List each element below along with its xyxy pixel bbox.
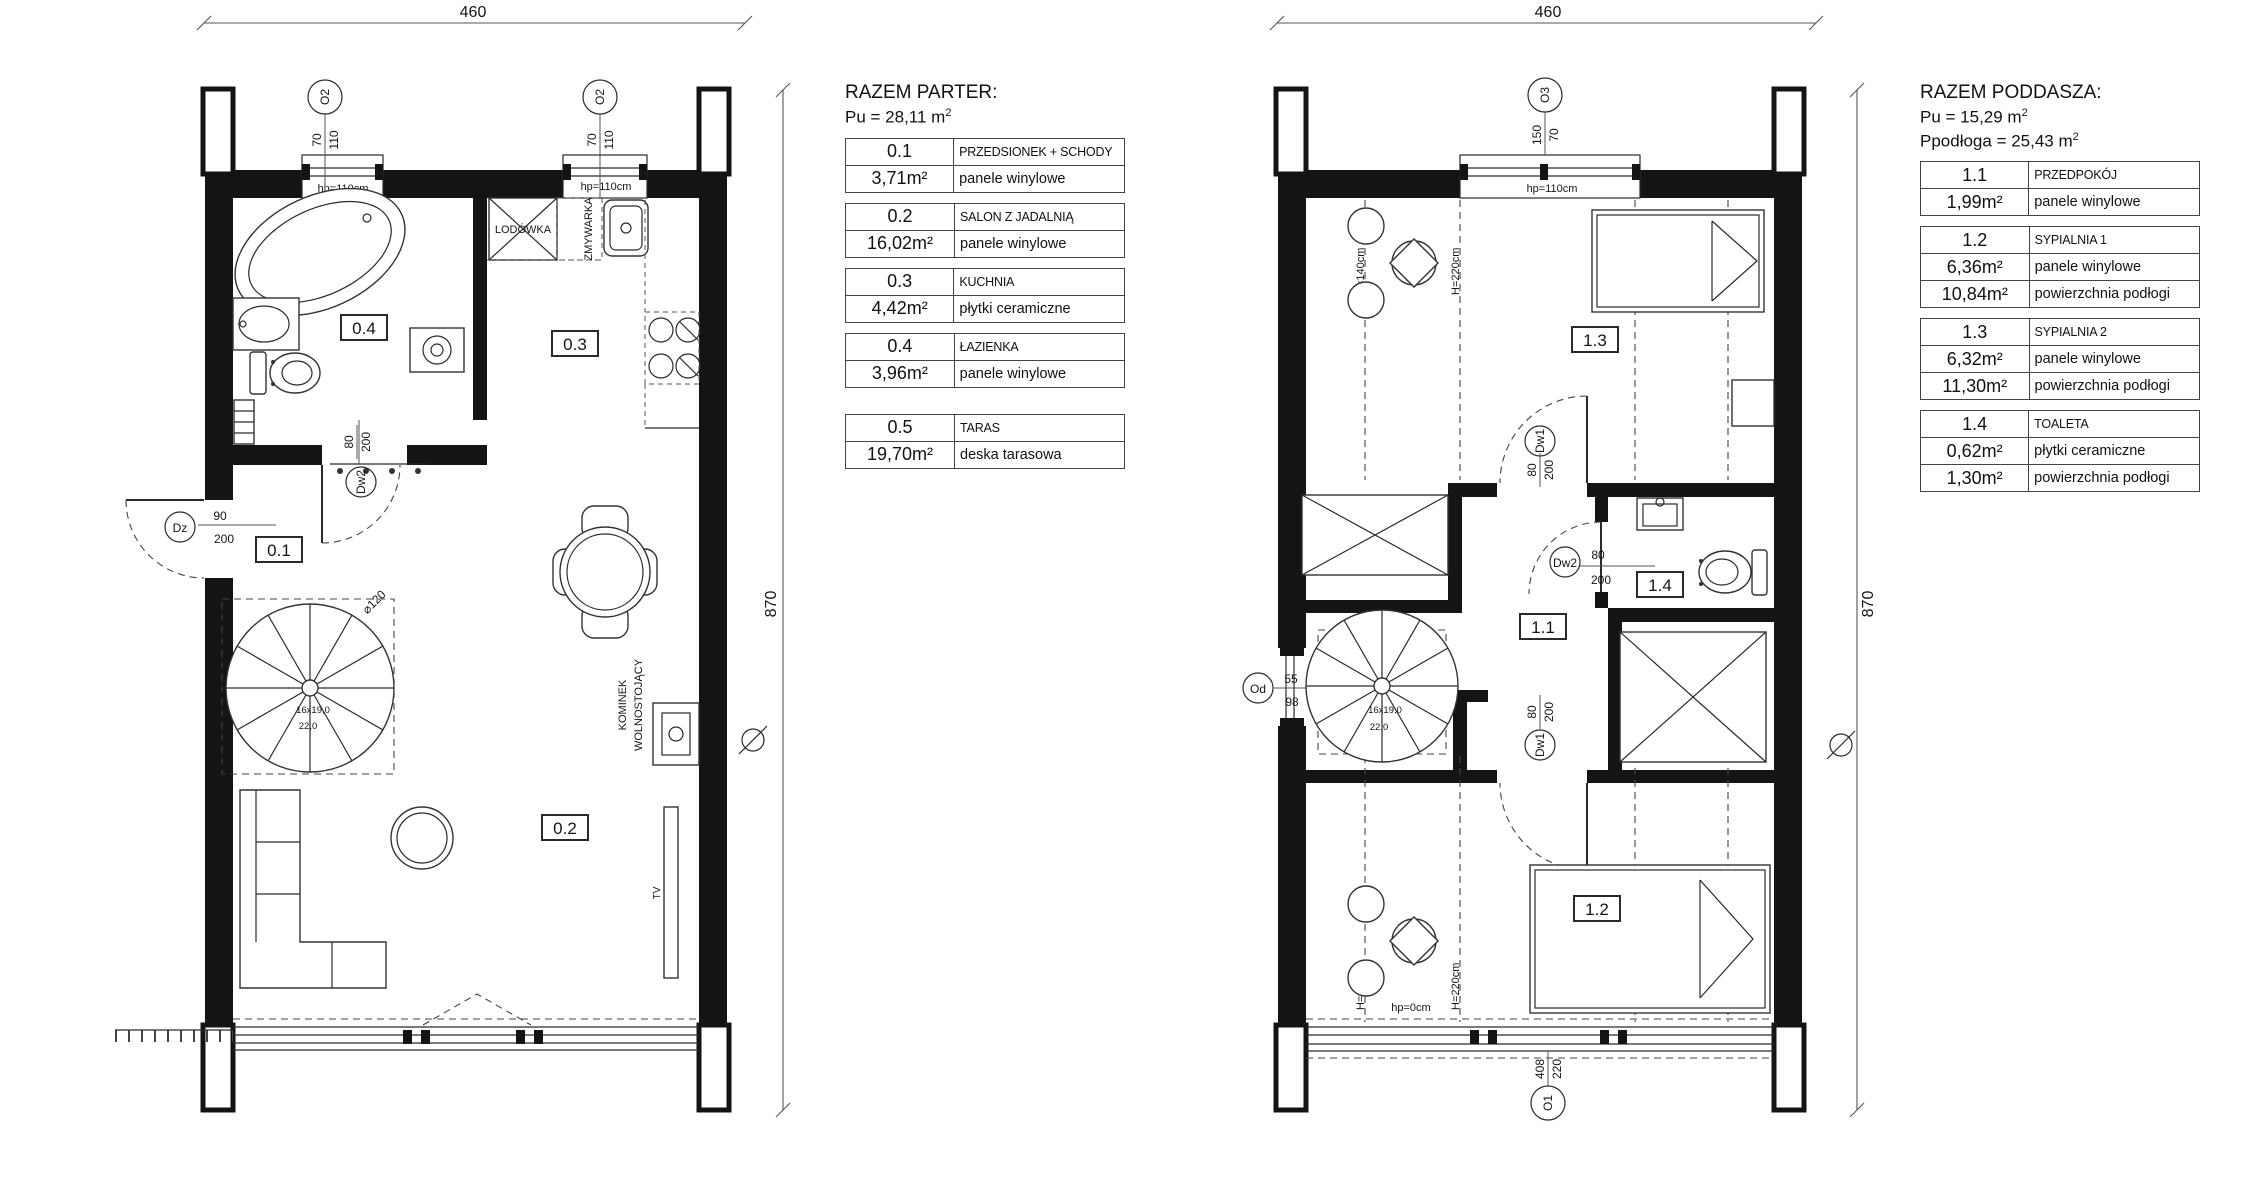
dimension-width-poddasze: 460: [1270, 4, 1823, 30]
bathroom-door-symbol: Dw2: [354, 470, 368, 494]
room-area: 11,30m²: [1921, 373, 2030, 400]
door-symbol: Dw1: [1533, 429, 1547, 453]
entry-door-symbol: Dz: [173, 521, 188, 535]
bathroom-door-width: 80: [342, 435, 356, 449]
fireplace: KOMINEK WOLNOSTOJĄCY: [617, 658, 699, 765]
dishwasher-label: ZMYWARKA: [583, 197, 595, 261]
room-finish: panele winylowe: [2029, 189, 2200, 216]
room-area: 0,62m²: [1921, 438, 2029, 465]
dimension-width-parter: 460: [197, 4, 752, 30]
room-id: 0.5: [846, 414, 955, 441]
tv-cabinet: TV: [652, 807, 678, 978]
washing-machine: [410, 328, 464, 372]
fridge-label: LODÓWKA: [495, 223, 552, 236]
door-height: 200: [1542, 702, 1556, 722]
pillar: [699, 1025, 729, 1110]
stair-steps: 16x19,0: [296, 705, 330, 716]
room-area: 4,42m²: [846, 295, 954, 322]
window-width: 150: [1530, 125, 1544, 145]
legend-room-0-2: 0.2 SALON Z JADALNIĄ 16,02m² panele winy…: [845, 203, 1125, 258]
flue-symbol: [1827, 731, 1855, 759]
legend-parter: RAZEM PARTER: Pu = 28,11 m2 0.1 PRZEDSIO…: [845, 82, 1125, 469]
door-symbol: Dw2: [1553, 556, 1577, 570]
window-width: 70: [585, 133, 599, 147]
svg-text:1.4: 1.4: [1648, 576, 1672, 595]
svg-text:1.2: 1.2: [1585, 900, 1609, 919]
pillar: [1276, 89, 1306, 174]
room-name: TARAS: [955, 414, 1125, 441]
room-area: 1,30m²: [1921, 465, 2029, 492]
room-finish: powierzchnia podłogi: [2029, 465, 2200, 492]
room-name: SYPIALNIA 2: [2029, 319, 2199, 346]
washbasin: [233, 298, 299, 350]
entry-door-height: 200: [214, 532, 234, 546]
door-width: 80: [1525, 705, 1539, 719]
window-callout-o2-left: O2 70 110: [308, 80, 342, 198]
stair-steps: 16x19,0: [1368, 705, 1402, 716]
pillar: [1774, 89, 1804, 174]
pillar: [1276, 1025, 1306, 1110]
chairs-table-bottom: [1348, 886, 1438, 996]
legend-poddasze-floor-area: Ppodłoga = 25,43 m2: [1920, 131, 2200, 152]
door-dw1-upper: Dw1 80 200: [1500, 396, 1587, 487]
legend-room-0-1: 0.1 PRZEDSIONEK + SCHODY 3,71m² panele w…: [845, 138, 1125, 193]
attic-spiral-staircase: 16x19,0 22,0: [1306, 610, 1458, 762]
svg-text:870: 870: [1860, 591, 1877, 618]
room-tag-1-1: 1.1: [1520, 614, 1566, 639]
room-name: ŁAZIENKA: [954, 333, 1124, 360]
window-width: 55: [1284, 672, 1298, 686]
toilet: [250, 352, 320, 394]
fridge: LODÓWKA: [489, 198, 557, 260]
window-o2-right: hp=110cm: [563, 155, 647, 198]
fireplace-label-2: WOLNOSTOJĄCY: [633, 658, 645, 751]
door-width: 80: [1525, 463, 1539, 477]
window-symbol: O2: [318, 89, 332, 105]
window-sill-height: hp=110cm: [581, 181, 632, 193]
room-area: 19,70m²: [846, 441, 955, 468]
room-area: 10,84m²: [1921, 281, 2030, 308]
wardrobe-left: [1302, 495, 1448, 575]
terrace-door-swing: [423, 994, 531, 1025]
room-finish: panele winylowe: [954, 165, 1125, 192]
spiral-staircase: ⌀120 16x19,0 22,0: [222, 587, 394, 774]
dishwasher: ZMYWARKA: [557, 197, 602, 261]
legend-poddasze-title: RAZEM PODDASZA:: [1920, 82, 2200, 104]
room-id: 1.2: [1921, 227, 2030, 254]
poddasze-plan: hp=110cm O3 150 70 hp=0cm: [1243, 4, 1877, 1120]
window-symbol: O1: [1541, 1095, 1555, 1111]
window-height: 110: [327, 130, 341, 149]
nightstand: [1732, 380, 1774, 426]
window-height: 98: [1285, 695, 1299, 709]
window-width: 408: [1533, 1059, 1547, 1079]
legend-poddasze-usable-area: Pu = 15,29 m2: [1920, 107, 2200, 128]
room-area: 3,71m²: [846, 165, 954, 192]
room-id: 0.2: [846, 203, 955, 230]
legend-room-0-4: 0.4 ŁAZIENKA 3,96m² panele winylowe: [845, 333, 1125, 388]
bed-sypialnia-1: [1530, 865, 1770, 1013]
room-tag-0-4: 0.4: [341, 315, 387, 340]
door-height: 200: [1591, 573, 1611, 587]
room-finish: płytki ceramiczne: [2029, 438, 2200, 465]
window-o1: hp=0cm 408 220 O1: [1306, 1002, 1774, 1120]
svg-text:1.3: 1.3: [1583, 331, 1607, 350]
window-symbol: O3: [1538, 87, 1552, 103]
fireplace-label-1: KOMINEK: [617, 679, 629, 730]
room-area: 1,99m²: [1921, 189, 2029, 216]
bathroom-door-height: 200: [359, 432, 373, 452]
stair-width: 22,0: [1370, 722, 1389, 733]
bathroom-door: Dw2 80 200: [322, 420, 400, 543]
room-finish: powierzchnia podłogi: [2029, 373, 2199, 400]
legend-room-0-3: 0.3 KUCHNIA 4,42m² płytki ceramiczne: [845, 268, 1125, 323]
legend-room-1-1: 1.1 PRZEDPOKÓJ 1,99m² panele winylowe: [1920, 161, 2200, 216]
door-width: 80: [1591, 548, 1605, 562]
coat-hooks: [330, 464, 428, 474]
svg-text:460: 460: [460, 4, 487, 21]
room-finish: płytki ceramiczne: [954, 295, 1125, 322]
room-name: TOALETA: [2029, 411, 2200, 438]
tv-label: TV: [652, 886, 663, 899]
dimension-height-parter: 870: [763, 83, 790, 1117]
window-sill-height: hp=0cm: [1391, 1002, 1430, 1014]
door-symbol: Dw1: [1533, 733, 1547, 757]
room-finish: panele winylowe: [954, 360, 1124, 387]
sofa: [240, 790, 386, 988]
stair-width: 22,0: [299, 721, 318, 732]
window-height: 70: [1547, 128, 1561, 142]
radiator: [234, 400, 254, 444]
legend-room-0-5: 0.5 TARAS 19,70m² deska tarasowa: [845, 414, 1125, 469]
room-finish: deska tarasowa: [955, 441, 1125, 468]
svg-text:0.2: 0.2: [553, 819, 577, 838]
window-symbol: Od: [1250, 682, 1266, 696]
legend-room-1-2: 1.2 SYPIALNIA 1 6,36m² panele winylowe 1…: [1920, 226, 2200, 308]
dining-table: [553, 506, 657, 638]
wardrobe-right: [1620, 632, 1766, 762]
room-finish: powierzchnia podłogi: [2029, 281, 2199, 308]
room-name: PRZEDPOKÓJ: [2029, 162, 2200, 189]
room-finish: panele winylowe: [2029, 254, 2199, 281]
svg-text:0.3: 0.3: [563, 335, 587, 354]
pillar: [699, 89, 729, 174]
room-name: KUCHNIA: [954, 268, 1125, 295]
window-height: 110: [602, 130, 616, 149]
attic-sink: [1637, 498, 1683, 530]
window-width: 70: [310, 133, 324, 147]
room-area: 3,96m²: [846, 360, 955, 387]
room-id: 1.4: [1921, 411, 2029, 438]
door-dw1-lower: Dw1 80 200: [1500, 695, 1587, 870]
room-area: 16,02m²: [846, 230, 955, 257]
room-area: 6,32m²: [1921, 346, 2030, 373]
svg-text:0.1: 0.1: [267, 541, 291, 560]
room-tag-1-3: 1.3: [1572, 327, 1618, 352]
room-id: 1.3: [1921, 319, 2030, 346]
legend-poddasze: RAZEM PODDASZA: Pu = 15,29 m2 Ppodłoga =…: [1920, 82, 2200, 492]
roof-height-label: H=220cm: [1450, 963, 1462, 1010]
legend-parter-title: RAZEM PARTER:: [845, 82, 1125, 104]
roof-height-label: H=220cm: [1450, 248, 1462, 295]
window-symbol: O2: [593, 89, 607, 105]
legend-room-1-3: 1.3 SYPIALNIA 2 6,32m² panele winylowe 1…: [1920, 318, 2200, 400]
flue-symbol: [739, 726, 767, 754]
kitchen-sink: [604, 200, 648, 256]
room-finish: panele winylowe: [955, 230, 1125, 257]
room-name: PRZEDSIONEK + SCHODY: [954, 138, 1125, 165]
room-id: 0.4: [846, 333, 955, 360]
room-name: SYPIALNIA 1: [2029, 227, 2199, 254]
room-id: 0.3: [846, 268, 954, 295]
stair-diameter: ⌀120: [359, 587, 388, 616]
legend-parter-total-area: Pu = 28,11 m2: [845, 107, 1125, 128]
entry-door: Dz 90 200: [126, 500, 276, 578]
dimension-height-poddasze: 870: [1850, 83, 1877, 1117]
pillar: [203, 89, 233, 174]
room-id: 0.1: [846, 138, 954, 165]
parter-plan: hp=110cm hp=110cm O2 70 110 O2: [115, 4, 790, 1117]
room-tag-0-2: 0.2: [542, 815, 588, 840]
bed-sypialnia-2: [1592, 210, 1764, 312]
room-tag-0-3: 0.3: [552, 331, 598, 356]
room-tag-1-4: 1.4: [1637, 572, 1683, 597]
window-o3: hp=110cm O3 150 70: [1460, 78, 1640, 198]
svg-text:460: 460: [1535, 4, 1562, 21]
room-name: SALON Z JADALNIĄ: [955, 203, 1125, 230]
pillar: [1774, 1025, 1804, 1110]
room-area: 6,36m²: [1921, 254, 2030, 281]
room-id: 1.1: [1921, 162, 2029, 189]
svg-text:1.1: 1.1: [1531, 618, 1555, 637]
door-height: 200: [1542, 460, 1556, 480]
entry-door-width: 90: [213, 509, 227, 523]
coffee-table: [391, 807, 453, 869]
window-height: 220: [1550, 1059, 1564, 1079]
svg-text:870: 870: [763, 591, 780, 618]
window-sill-height: hp=110cm: [1527, 183, 1578, 195]
room-tag-0-1: 0.1: [256, 537, 302, 562]
legend-room-1-4: 1.4 TOALETA 0,62m² płytki ceramiczne 1,3…: [1920, 410, 2200, 492]
attic-toilet: [1699, 550, 1767, 595]
room-finish: panele winylowe: [2029, 346, 2199, 373]
svg-text:0.4: 0.4: [352, 319, 376, 338]
